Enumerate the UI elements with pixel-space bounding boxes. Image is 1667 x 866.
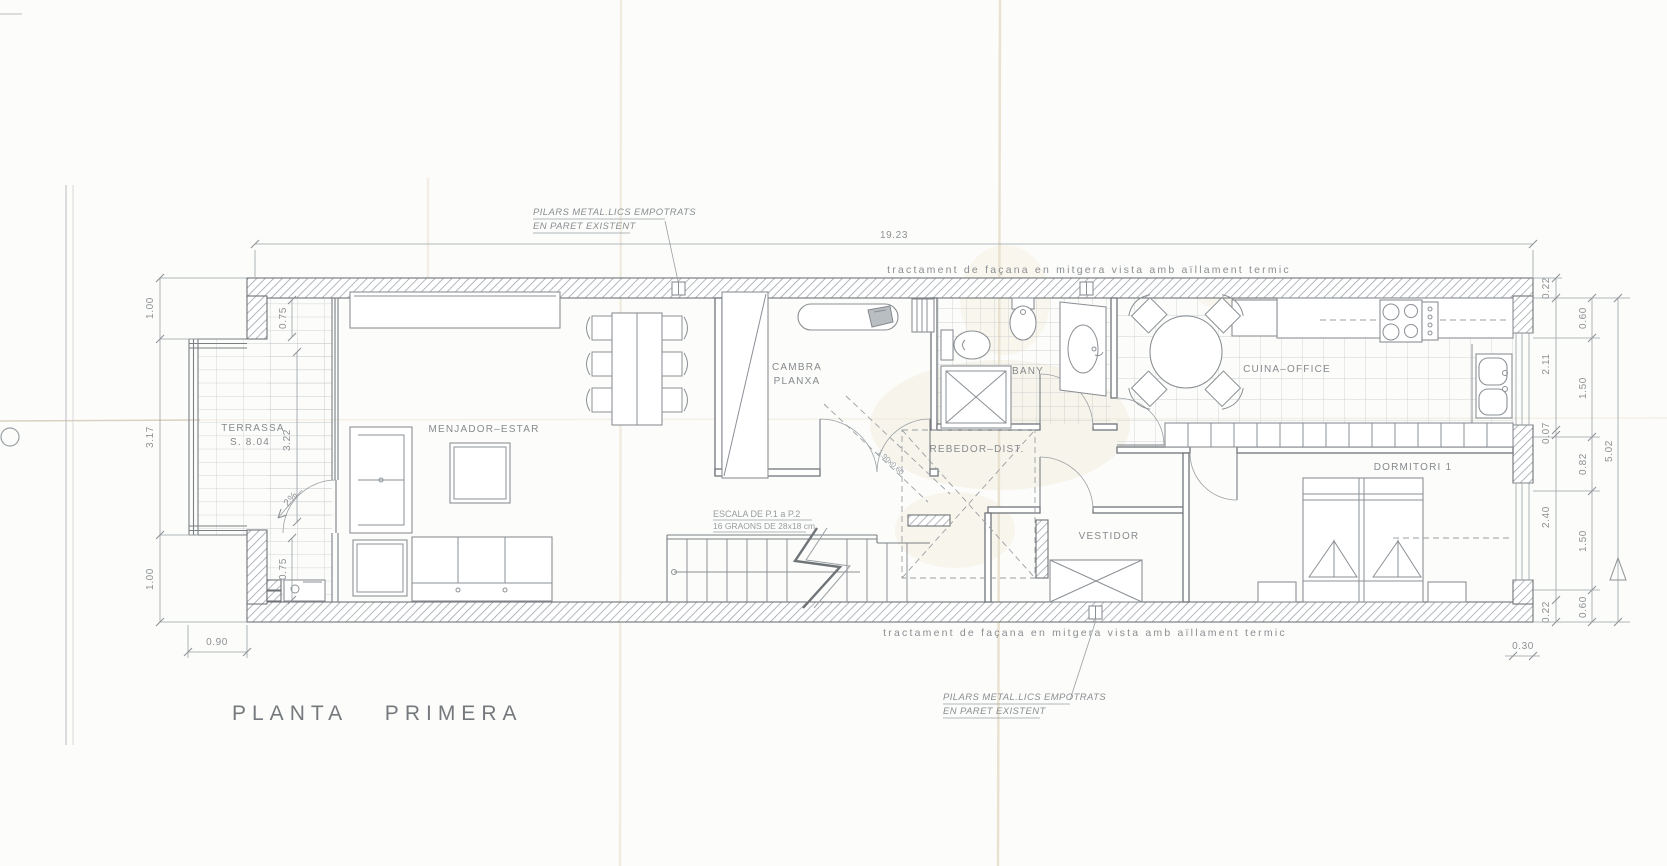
dim-left-inner-2: 0.75: [278, 558, 289, 580]
bidet-fixture: [1010, 298, 1036, 340]
dimension-right-col1: [1552, 274, 1560, 626]
dimension-right-total: [1533, 278, 1630, 626]
room-label-menjador: MENJADOR–ESTAR: [428, 424, 539, 435]
room-label-terrassa-area: S. 8.04: [230, 437, 270, 448]
kitchen-sink: [1476, 354, 1512, 418]
stairs: [667, 528, 930, 608]
wall-left-bottom: [247, 530, 267, 604]
stairs-label-1: ESCALA DE P.1 a P.2: [713, 509, 800, 519]
dimension-bottom-right: [1505, 652, 1540, 660]
dim-left-2: 1.00: [145, 568, 156, 590]
terrassa-partition: [332, 298, 338, 602]
washbasin-fixture: [1060, 302, 1106, 396]
room-label-terrassa: TERRASSA: [221, 423, 285, 434]
dim-r1-0: 0.22: [1541, 277, 1552, 299]
pillar-top-1: [672, 282, 685, 295]
room-label-cambra-1: CAMBRA: [772, 362, 822, 373]
dim-r2-4: 0.60: [1578, 596, 1589, 618]
side-table: [353, 540, 407, 596]
bed: [1303, 478, 1423, 602]
closet: [722, 292, 768, 478]
dim-bottom-right: 0.30: [1512, 641, 1534, 652]
wall-vestidor-top-l: [988, 507, 1040, 513]
room-label-cuina: CUINA–OFFICE: [1243, 364, 1331, 375]
note-pilars-bottom-2: EN PARET EXISTENT: [943, 706, 1046, 717]
dim-r1-1: 2.11: [1541, 353, 1552, 374]
room-label-rebedor: REBEDOR–DIST.: [929, 444, 1024, 455]
nightstand-left: [1258, 582, 1296, 602]
wall-bany-cuina: [1111, 298, 1117, 398]
ironing-board: [798, 304, 898, 330]
wall-right-bottom: [1513, 580, 1533, 604]
dim-r1-4: 0.22: [1541, 601, 1552, 623]
note-pilars-top-2: EN PARET EXISTENT: [533, 221, 636, 232]
shower-fixture: [941, 366, 1011, 428]
dim-r2-1: 1.50: [1578, 377, 1589, 399]
sideboard: [350, 292, 560, 328]
dining-table: [612, 313, 662, 425]
dim-r1-3: 2.40: [1541, 506, 1552, 528]
room-label-dormitori: DORMITORI 1: [1374, 462, 1453, 473]
room-label-cambra-2: PLANXA: [774, 376, 821, 387]
window-right-kitchen: [1513, 333, 1533, 425]
wall-cuina-bottom-l: [1117, 447, 1190, 453]
room-label-bany: BANY: [1012, 366, 1044, 377]
vestidor-furniture: [1050, 560, 1142, 602]
room-label-vestidor: VESTIDOR: [1079, 531, 1140, 542]
page-title: PLANTA PRIMERA: [232, 702, 523, 725]
window-right-dormitori: [1513, 483, 1533, 580]
break-line: [795, 528, 840, 608]
dormitori-furniture: [1258, 478, 1513, 602]
dimension-right-col2: [1588, 294, 1596, 626]
dim-left-0: 1.00: [145, 297, 156, 319]
fold-crease-center: [998, 0, 1000, 866]
door-dormitori: [1190, 453, 1237, 500]
dim-r2-0: 0.60: [1578, 307, 1589, 329]
wall-cuina-bottom-r: [1237, 447, 1513, 453]
wall-vestidor-left: [985, 513, 991, 602]
note-pilars-bottom-1: PILARS METAL.LICS EMPOTRATS: [943, 692, 1106, 703]
wall-vestidor-top-r: [1093, 507, 1185, 513]
dim-total-width: 19.23: [880, 230, 908, 241]
dim-left-1: 3.17: [145, 426, 156, 448]
dim-bottom-left: 0.90: [206, 637, 228, 648]
wall-rebedor-top-mid: [930, 469, 938, 476]
note-pilars-top-1: PILARS METAL.LICS EMPOTRATS: [533, 207, 696, 218]
nightstand-right: [1428, 582, 1466, 602]
dim-r2-2: 0.82: [1578, 453, 1589, 475]
menjador-furniture: [350, 292, 688, 601]
stairs-label-2: 16 GRAONS DE 28x18 cm: [713, 521, 815, 531]
binder-hole: [1, 428, 19, 446]
pillar-bottom-1: [1089, 606, 1102, 619]
armchair: [350, 427, 412, 533]
paper-sheet: PILARS METAL.LICS EMPOTRATS EN PARET EXI…: [0, 0, 1667, 866]
pier-rebedor: [908, 515, 950, 526]
wall-cambra-left: [715, 298, 722, 475]
dim-left-inner-0: 0.75: [278, 307, 289, 329]
coffee-table: [450, 443, 510, 503]
wall-right-top: [1513, 296, 1533, 333]
cooktop: [1380, 300, 1438, 342]
wardrobe-strip: [1165, 423, 1513, 447]
wall-bottom: [247, 602, 1533, 622]
pier-vestidor: [1036, 520, 1048, 578]
toilet-fixture: [941, 330, 990, 360]
dim-right-total: 5.02: [1604, 440, 1615, 462]
wall-bany-bottom-r: [1093, 424, 1117, 430]
note-facade-bottom: tractament de façana en mitgera vista am…: [883, 627, 1287, 639]
drying-rack: [912, 299, 934, 332]
note-facade-top: tractament de façana en mitgera vista am…: [887, 264, 1291, 276]
dim-r2-3: 1.50: [1578, 530, 1589, 552]
wall-left-top: [247, 296, 267, 339]
dresser: [1050, 560, 1142, 602]
wall-dormitori-left: [1183, 453, 1189, 602]
pillar-top-2: [1080, 282, 1093, 295]
utility-corner: [267, 580, 325, 601]
wall-right-pier: [1513, 425, 1533, 483]
fold-crease-left: [620, 0, 621, 866]
sofa: [412, 537, 552, 601]
dim-r1-2: 0.07: [1541, 422, 1552, 444]
